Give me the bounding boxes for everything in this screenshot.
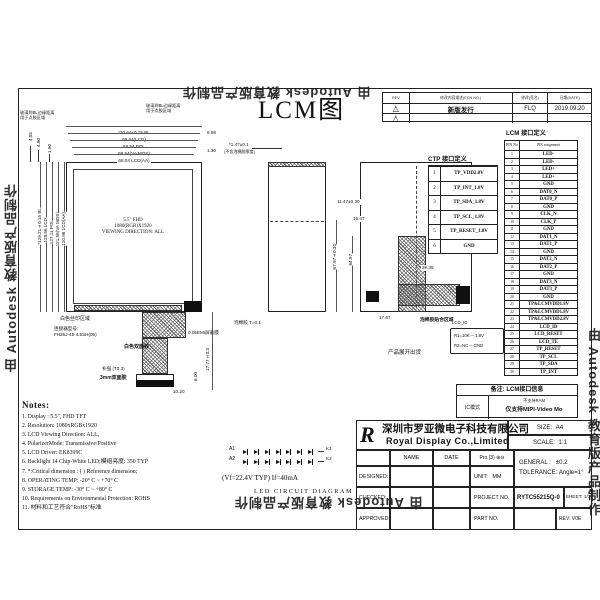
lcm-pin-row: 11 GND: [505, 225, 577, 233]
lcm-pin-row: 22 TP&LCMVDD1.8V: [505, 308, 577, 316]
checked-name-cell: [390, 487, 433, 508]
dim-label: 67.97±0.30: [331, 244, 339, 269]
led-diode-icon: [254, 460, 260, 464]
lcm-pin-row: 29 TP_SDA: [505, 360, 577, 368]
projection-symbol-icon: ⊕⊖: [496, 455, 504, 461]
fpc-connector: [136, 380, 174, 387]
lcm-pin-row: 21 TP&LCMVDD1.8V: [505, 300, 577, 308]
pin-number: 9: [505, 211, 520, 218]
pin-number: 3: [505, 166, 520, 173]
pin-number: 14: [505, 249, 520, 256]
front-view-active-area: [73, 169, 193, 304]
panel-ic-block: [184, 301, 202, 312]
pin-number: 4: [429, 211, 441, 225]
ctp-pin-row: 3 TP_SDA_1.8V: [429, 195, 497, 210]
pin-name: DAT1_P: [520, 241, 577, 248]
pin-number: 5: [505, 181, 520, 188]
tolerance-value: Angle=1°: [559, 470, 584, 476]
checked-date-cell: [433, 487, 470, 508]
lcm-pin-row: 6 DAT0_N: [505, 188, 577, 196]
lcm-pin-row: 4 LED+: [505, 173, 577, 181]
note-item: 9. STORAGE TEMP: -30° C ~ +80° C: [22, 486, 150, 495]
pin-name: TP_SCL: [520, 354, 577, 361]
pin-name: LED+: [520, 174, 577, 181]
pin-number: 18: [505, 279, 520, 286]
side-view-outline: [268, 162, 326, 312]
dim-label: 4.55: [27, 132, 35, 141]
ctp-pin-row: 4 TP_SCL_1.8V: [429, 210, 497, 225]
pin-name: GND: [520, 226, 577, 233]
tolerance-label: TOLERANCE:: [519, 470, 557, 476]
led-diode-icon: [243, 460, 249, 464]
led-diode-icon: [265, 450, 271, 454]
pin-number: 26: [505, 339, 520, 346]
dim-line: [49, 154, 50, 162]
lcm-pin-row: 28 TP_SCL: [505, 353, 577, 361]
dim-label: 64.97: [347, 254, 355, 266]
pin-number: 6: [429, 240, 441, 254]
lcm-pin-row: 13 DAT1_P: [505, 240, 577, 248]
lcm-pin-row: 16 DAT2_P: [505, 263, 577, 271]
ctp-pin-row: 2 TP_INT_1.8V: [429, 181, 497, 196]
dim-label: 6.00: [192, 372, 200, 381]
lcm-table-header: PIN No PIN assignment: [505, 141, 577, 150]
dim-label: 16.47: [352, 216, 366, 222]
led-diode-icon: [286, 450, 292, 454]
panel-label: 5.5" FHD 1080(RGB)X1920 VIEWING DIRECTIO…: [80, 218, 186, 236]
lcm-pin-row: 14 GND: [505, 248, 577, 256]
pin-name: TP&LCMVDD2.8V: [520, 316, 577, 323]
glass-note-line: 用于点胶区域: [146, 108, 180, 113]
connector-model-note: 连接器型号: FH26J-45-4.5SH(05): [54, 326, 97, 338]
led-diode-icon: [297, 460, 303, 464]
pin-name: GND: [441, 240, 497, 254]
lcm-pin-row: 23 TP&LCMVDD2.8V: [505, 315, 577, 323]
part-no-value-cell: [514, 508, 556, 530]
led-diode-icon: [286, 460, 292, 464]
led-diode-icon: [265, 460, 271, 464]
leader-line: [252, 148, 282, 149]
pin-number: 19: [505, 286, 520, 293]
pin-name: TP_SDA_1.8V: [441, 196, 497, 210]
lcm-pin-row: 3 LED+: [505, 165, 577, 173]
connector-note-line: FH26J-45-4.5SH(05): [54, 332, 97, 338]
glass-note: 玻璃到BL边缘距离 用于点胶区域: [146, 103, 180, 114]
pin-number: 1: [505, 151, 520, 158]
led-spec: (Vf=22.4V TYP) If=40mA: [222, 474, 298, 482]
general-label: GENERAL :: [519, 460, 551, 466]
pin-name: DAT2_N: [520, 256, 577, 263]
pin-name: LCD_ID: [520, 324, 577, 331]
pin-name: DAT2_P: [520, 264, 577, 271]
io-option-r2: R2=NC ─ GND: [454, 343, 483, 348]
rev-col-header: REV: [383, 93, 409, 103]
led-diode-icon: [254, 450, 260, 454]
note-item: 7. *:Critical dimension : ( ) Reference …: [22, 468, 150, 477]
remark-table: 备注: LCM接口信息 IC模式 不支持RAM 仅支持MIPI-Video Mo: [456, 384, 578, 418]
pin-number: 6: [505, 189, 520, 196]
lcm-pin-row: 7 DAT0_P: [505, 195, 577, 203]
pin-name: LCD_RESET: [520, 331, 577, 338]
pin-number: 24: [505, 324, 520, 331]
note-item: 10. Requirements on Environmental Protec…: [22, 495, 150, 504]
led-wire: [318, 451, 324, 452]
note-item: 11. 材料和工艺符合"RoHS"标准: [22, 504, 150, 513]
ctp-pin-row: 5 TP_RESET_1.8V: [429, 224, 497, 239]
remark-header: 备注: LCM接口信息: [457, 385, 577, 396]
dim-label: 39.35: [421, 265, 435, 271]
rev-col-header: 修改(签名): [512, 93, 548, 103]
ctp-pin-row: 6 GND: [429, 239, 497, 254]
pin-number: 2: [505, 159, 520, 166]
side-view-dashed-line: [270, 221, 324, 222]
white-tape-note: 白色双面胶: [124, 344, 149, 350]
company-logo: R: [360, 422, 375, 448]
pin-number: 7: [505, 196, 520, 203]
page-title: LCM图: [258, 96, 345, 126]
pin-name: TP&LCMVDD1.8V: [520, 309, 577, 316]
pin-name: DAT1_N: [520, 234, 577, 241]
pin-name: GND: [520, 204, 577, 211]
revision-desc: 新版发行: [409, 104, 512, 113]
pin-number: 8: [505, 204, 520, 211]
pin-number: 13: [505, 241, 520, 248]
panel-bottom-tape: [74, 305, 182, 311]
dim-label: 11.47±0.30: [336, 199, 361, 205]
lcm-pin-row: 19 DAT3_P: [505, 285, 577, 293]
pin-name: GND: [520, 249, 577, 256]
led-diode-icon: [276, 460, 282, 464]
designed-date-cell: [433, 466, 470, 487]
remark-label: IC模式: [457, 396, 489, 419]
pin-name: TP_INT: [520, 369, 577, 376]
dim-label: 4.60: [35, 138, 43, 147]
project-no-value: RYTC55215Q-0: [514, 487, 564, 508]
rev-label: REV:: [559, 516, 570, 522]
led-diode-icon: [308, 450, 314, 454]
pin-number: 21: [505, 301, 520, 308]
lcm-table-title: LCM 接口定义: [506, 130, 546, 137]
dim-label: 17.67: [378, 315, 392, 321]
pin-number: 16: [505, 264, 520, 271]
revision-table: REV 修改内容描述(ECN NO.) 修改(签名) 日期(DATE) △1 新…: [382, 92, 592, 122]
stiffener-note: 补强 (T0.3): [102, 366, 125, 372]
fpc-upper: [142, 312, 186, 338]
pin-number: 11: [505, 226, 520, 233]
note-item: 8. OPERATING TEMP: -20° C ~ +70° C: [22, 477, 150, 486]
io-select-box: R1=10K ─ 1.8V R2=NC ─ GND: [450, 328, 504, 354]
revision-triangle-icon: △1: [393, 105, 399, 113]
revision-row: △2: [383, 113, 591, 123]
size-label: SIZE:: [537, 424, 552, 431]
pin-name: TP_SCL_1.8V: [441, 211, 497, 225]
pin-number: 22: [505, 309, 520, 316]
revision-row: △1 新版发行 FLQ 2019.09.20: [383, 103, 591, 113]
date-column-header: DATE: [433, 450, 470, 466]
back-fpc-connector: [456, 286, 470, 304]
approved-name-cell: [390, 508, 433, 530]
lcm-pin-row: 25 LCD_RESET: [505, 330, 577, 338]
lcm-table-body: 1 LED- 2 LED- 3 LED+ 4 LED+: [505, 150, 577, 375]
emi-film-note: 0.05EMI屏蔽膜: [188, 330, 219, 336]
pin-name: DAT0_P: [520, 196, 577, 203]
back-fpc-horizontal: [398, 284, 460, 306]
notes-heading: Notes:: [22, 400, 50, 411]
led-diode-icon: [243, 450, 249, 454]
project-no-label: PROJECT NO.: [470, 487, 514, 508]
unit-value: MM: [492, 474, 501, 480]
pin-name: CLK_P: [520, 219, 577, 226]
revision-triangle-icon: △2: [393, 115, 399, 123]
lcm-pin-row: 1 LED-: [505, 150, 577, 158]
pin-name: LED-: [520, 151, 577, 158]
lcm-pin-row: 18 DAT3_N: [505, 278, 577, 286]
lcm-pin-table: PIN No PIN assignment 1 LED- 2 LED- 3 LE…: [504, 140, 578, 376]
revision-author: FLQ: [512, 104, 548, 113]
pin-name: LED-: [520, 159, 577, 166]
pin-name: TP_RESET_1.8V: [441, 225, 497, 239]
revision-date: 2019.09.20: [547, 104, 591, 113]
led-wire: [318, 461, 324, 462]
note-item: 5. LCD Driver: EK8399C: [22, 449, 150, 458]
tape-note: 3mm双面胶: [100, 375, 127, 381]
led-string-row: [241, 458, 316, 465]
scale-label: SCALE:: [533, 439, 555, 446]
pin-number: 15: [505, 256, 520, 263]
lcm-pin-row: 17 GND: [505, 270, 577, 278]
lcm-pin-row: 9 CLK_N: [505, 210, 577, 218]
drawing-sheet: 由 Autodesk 教育版产品制作 由 Autodesk 教育版产品制作 由 …: [0, 0, 600, 600]
note-item: 4. PolarizerMode: Transmissive/Positive: [22, 440, 150, 449]
designed-name-cell: [390, 466, 433, 487]
led-diode-icon: [297, 450, 303, 454]
pin-number: 29: [505, 361, 520, 368]
pin-number: 10: [505, 219, 520, 226]
sheet-value: SHEET: 1/1: [564, 487, 592, 508]
io-label: LCD_IO: [452, 320, 468, 325]
led-anode-a1: A1: [229, 446, 235, 452]
approved-label: APPROVED:: [356, 508, 390, 530]
lcm-pin-row: 8 GND: [505, 203, 577, 211]
rev-value: V0E: [572, 516, 581, 522]
approved-date-cell: [433, 508, 470, 530]
pin-number: 12: [505, 234, 520, 241]
dim-line: [38, 150, 39, 162]
dim-label: 17.77±0.3: [204, 348, 212, 371]
checked-label: CHECKED:: [356, 487, 390, 508]
ctp-table-title: CTP 接口定义: [428, 156, 467, 163]
dim-label: 68.04 LCD(AA): [117, 158, 150, 163]
lcm-pin-row: 15 DAT2_N: [505, 255, 577, 263]
scale-value: 1:1: [558, 439, 567, 446]
remark-line2: 仅支持MIPI-Video Mo: [489, 404, 579, 413]
pin-name: CLK_N: [520, 211, 577, 218]
pin-name: TP_RESET: [520, 346, 577, 353]
rev-col-header: 修改内容描述(ECN NO.): [409, 93, 512, 103]
lcm-pin-row: 12 DAT1_N: [505, 233, 577, 241]
ctp-pin-row: 1 TP_VDD2.8V: [429, 166, 497, 181]
lcm-pin-row: 10 CLK_P: [505, 218, 577, 226]
dim-label: 120.96 LCD(AA): [60, 212, 68, 246]
size-value: A4: [556, 424, 564, 431]
company-name-en: Royal Display Co.,Limited: [386, 436, 509, 447]
pin-name: TP_INT_1.8V: [441, 182, 497, 196]
pin-name: DAT3_P: [520, 286, 577, 293]
rev-col-header: 日期(DATE): [547, 93, 591, 103]
glass-note: 玻璃到BL边缘距离 用于点胶区域: [20, 110, 54, 121]
dim-label: 1.30: [206, 148, 217, 154]
led-diode-icon: [308, 460, 314, 464]
pin-name: DAT3_N: [520, 279, 577, 286]
part-no-label: PART NO.: [470, 508, 514, 530]
pin-name: GND: [520, 294, 577, 301]
glass-note-line: 用于点胶区域: [20, 115, 54, 120]
pin-col-header: PIN assignment: [520, 141, 577, 150]
pin-name: GND: [520, 181, 577, 188]
lcm-pin-row: 24 LCD_ID: [505, 323, 577, 331]
pin-number: 4: [505, 174, 520, 181]
led-cathode-k2: K2: [326, 456, 332, 462]
note-item: 3. LCD Viewing Direction: ALL,: [22, 431, 150, 440]
foam-area-note: 泡棉胶贴合区域: [420, 318, 454, 324]
pin-name: TP_VDD2.8V: [441, 167, 497, 181]
led-anode-a2: A2: [229, 456, 235, 462]
pin-number: 1: [429, 167, 441, 181]
pin-name: LED+: [520, 166, 577, 173]
ship-flat-note: 产品展开出货: [388, 350, 421, 357]
pin-number: 23: [505, 316, 520, 323]
pin-number: 28: [505, 354, 520, 361]
lcm-pin-row: 20 GND: [505, 293, 577, 301]
dim-line: [30, 146, 31, 162]
lcm-pin-row: 26 LCD_TE: [505, 338, 577, 346]
dim-line: [212, 312, 213, 390]
pin-col-header: PIN No: [505, 141, 520, 150]
pin-number: 25: [505, 331, 520, 338]
dim-line: [352, 236, 353, 312]
pin-number: 17: [505, 271, 520, 278]
thickness-note: (不含泡棉胶厚度): [224, 150, 255, 155]
io-option-r1: R1=10K ─ 1.8V: [454, 333, 484, 338]
thickness-dim: *1.47±0.1: [228, 142, 250, 148]
note-item: 2. Resolution: 1080xRGBx1920: [22, 422, 150, 431]
foam-note: 泡棉胶 T=0.1: [234, 320, 261, 326]
lcm-pin-row: 30 TP_INT: [505, 368, 577, 376]
led-cathode-k1: K1: [326, 446, 332, 452]
lcm-pin-row: 27 TP_RESET: [505, 345, 577, 353]
led-diode-icon: [276, 450, 282, 454]
note-item: 6. Backlight 14 Chip-White LED;模组亮度: 350…: [22, 458, 150, 467]
company-name-cn: 深圳市罗亚微电子科技有限公司: [382, 423, 529, 436]
pin-name: TP&LCMVDD1.8V: [520, 301, 577, 308]
notes-list: 1. Display : 5.5", FHD TFT 2. Resolution…: [22, 413, 150, 513]
led-caption: LED CIRCUIT DIAGRAM: [254, 488, 353, 496]
silkscreen-note: 白色丝印区域: [60, 316, 90, 322]
pin-name: DAT0_N: [520, 189, 577, 196]
pin-name: TP_SDA: [520, 361, 577, 368]
lcm-pin-row: 2 LED-: [505, 158, 577, 166]
pin-name: LCD_TE: [520, 339, 577, 346]
name-column-header: NAME: [390, 450, 433, 466]
pin-number: 20: [505, 294, 520, 301]
lcm-pin-row: 5 GND: [505, 180, 577, 188]
back-component-block: [366, 291, 379, 302]
dim-label: 6.58: [206, 130, 217, 136]
unit-label: UNIT:: [474, 474, 488, 480]
dim-label: 1.50: [46, 144, 54, 153]
dim-label: 10.20: [172, 389, 186, 395]
pin-number: 27: [505, 346, 520, 353]
pin-name: GND: [520, 271, 577, 278]
pin-number: 5: [429, 225, 441, 239]
pin-number: 3: [429, 196, 441, 210]
panel-viewing-label: VIEWING DIRECTION: ALL: [80, 230, 186, 236]
designed-label: DESIGNED:: [356, 466, 390, 487]
led-string-row: [241, 448, 316, 455]
ctp-pin-table: 1 TP_VDD2.8V 2 TP_INT_1.8V 3 TP_SDA_1.8V…: [428, 165, 498, 254]
note-item: 1. Display : 5.5", FHD TFT: [22, 413, 150, 422]
general-value: ±0.2: [556, 460, 568, 466]
pin-number: 30: [505, 369, 520, 376]
projection-label: Pro.(3): [479, 455, 494, 461]
pin-number: 2: [429, 182, 441, 196]
side-view-tape: [268, 162, 326, 167]
